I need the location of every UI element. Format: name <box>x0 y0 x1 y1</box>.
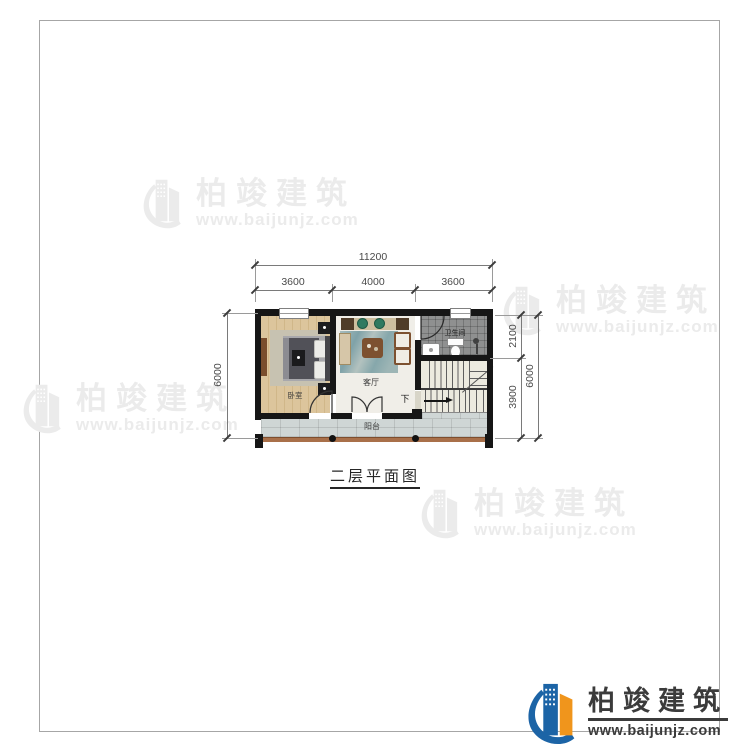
shower-stem <box>476 344 478 354</box>
dim-line-top-total <box>255 265 492 266</box>
dim-right-upper: 2100 <box>507 306 519 366</box>
plant <box>374 318 385 329</box>
wall-column <box>412 409 422 419</box>
dim-top-segment: 4000 <box>353 276 393 288</box>
dim-right-lower: 3900 <box>507 367 519 427</box>
coffee-table <box>362 338 383 358</box>
stair-direction-arrow-head <box>446 397 453 403</box>
balcony-railing <box>255 437 493 442</box>
dim-right-total: 6000 <box>524 346 536 406</box>
stair-edge-line <box>422 412 487 413</box>
watermark-url-text: www.baijunjz.com <box>474 520 637 540</box>
stair-direction-arrow-line <box>424 400 446 402</box>
dim-line-right-inner <box>521 315 522 438</box>
table-item <box>374 347 378 351</box>
bench <box>339 333 351 365</box>
railing-post <box>412 435 419 442</box>
wall-bedroom-living <box>330 316 336 394</box>
wall-living-stairs <box>415 340 421 390</box>
railing-end-post <box>255 434 263 448</box>
wall-left <box>255 316 261 420</box>
stair-upper-flight-treads <box>429 361 469 388</box>
drawing-title-underline <box>330 487 420 489</box>
railing-post <box>329 435 336 442</box>
brand-logo-rule <box>588 718 728 721</box>
watermark: 柏竣建筑 www.baijunjz.com <box>500 283 719 339</box>
brand-logo-url: www.baijunjz.com <box>588 723 728 739</box>
armchair <box>394 348 411 365</box>
watermark-url-text: www.baijunjz.com <box>556 317 719 337</box>
dim-line-left <box>227 313 228 438</box>
living-room-label: 客厅 <box>351 377 391 388</box>
stairs-down-label: 下 <box>399 392 411 405</box>
watermark-building-icon <box>20 381 67 437</box>
watermark-url-text: www.baijunjz.com <box>196 210 359 230</box>
watermark-brand-text: 柏竣建筑 <box>196 178 359 211</box>
brand-logo: 柏竣建筑 www.baijunjz.com <box>523 681 728 747</box>
brand-logo-text: 柏竣建筑 <box>588 688 728 715</box>
dim-top-segment: 3600 <box>433 276 473 288</box>
watermark: 柏竣建筑 www.baijunjz.com <box>418 486 637 542</box>
tv-console-cabinet <box>341 318 354 330</box>
stair-entry-opening <box>415 391 421 409</box>
watermark: 柏竣建筑 www.baijunjz.com <box>20 381 239 437</box>
bathroom-window <box>450 308 471 319</box>
watermark-brand-text: 柏竣建筑 <box>556 285 719 318</box>
dim-line-top-segments <box>255 290 492 291</box>
stair-lower-flight-treads <box>469 390 487 412</box>
watermark-building-icon <box>418 486 465 542</box>
railing-end-post <box>485 434 493 448</box>
balcony-floor-under-stairs <box>422 412 487 419</box>
drawing-title: 二层平面图 <box>300 465 450 486</box>
bed-runner <box>292 350 305 366</box>
wall-bathroom-stairs <box>415 355 487 361</box>
balcony-french-door <box>350 386 384 414</box>
floor-plan-sheet: 柏竣建筑 www.baijunjz.com 柏竣建筑 www.baijunjz.… <box>0 0 750 750</box>
bedroom-window <box>279 308 309 319</box>
bedroom-label: 卧室 <box>275 390 315 401</box>
wall-bottom-segment <box>331 413 352 419</box>
bed-runner-dot <box>297 356 300 359</box>
sink-faucet <box>429 348 433 352</box>
wall-bottom-segment <box>255 413 309 419</box>
dim-top-segment: 3600 <box>273 276 313 288</box>
nightstand-lamp <box>323 326 326 329</box>
bathroom-label: 卫生间 <box>433 328 477 338</box>
table-item <box>367 344 371 348</box>
dim-top-total: 11200 <box>343 251 403 263</box>
watermark-brand-text: 柏竣建筑 <box>474 488 637 521</box>
watermark-url-text: www.baijunjz.com <box>76 415 239 435</box>
plant <box>357 318 368 329</box>
tv-console-cabinet <box>396 318 409 330</box>
armchair <box>394 332 411 349</box>
balcony-label: 阳台 <box>352 421 392 432</box>
bed-duvet-fold <box>283 338 289 379</box>
brand-logo-icon <box>523 681 583 747</box>
dim-left-total: 6000 <box>212 345 224 405</box>
watermark: 柏竣建筑 www.baijunjz.com <box>140 176 359 232</box>
wall-right <box>487 316 493 448</box>
bedroom-wall-shelf <box>261 338 267 376</box>
dim-line-right-outer <box>538 315 539 438</box>
watermark-building-icon <box>140 176 187 232</box>
